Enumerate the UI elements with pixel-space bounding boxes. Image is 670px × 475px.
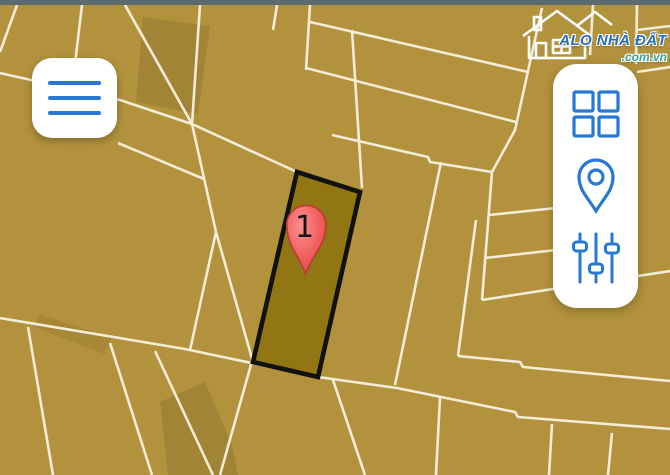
grid-icon[interactable] — [570, 85, 622, 143]
location-pin-icon[interactable] — [570, 157, 622, 215]
brand-logo: ALO NHÀ ĐẤT .com.vn — [520, 0, 670, 70]
map-app: { "app": { "brand": { "name": "ALO NHÀ Đ… — [0, 0, 670, 475]
menu-button[interactable] — [32, 58, 117, 138]
brand-name: ALO NHÀ ĐẤT — [559, 32, 667, 49]
map-tool-panel — [553, 64, 638, 308]
filters-icon[interactable] — [570, 229, 622, 287]
marker-label: 1 — [295, 210, 314, 245]
brand-domain: .com.vn — [559, 51, 667, 63]
